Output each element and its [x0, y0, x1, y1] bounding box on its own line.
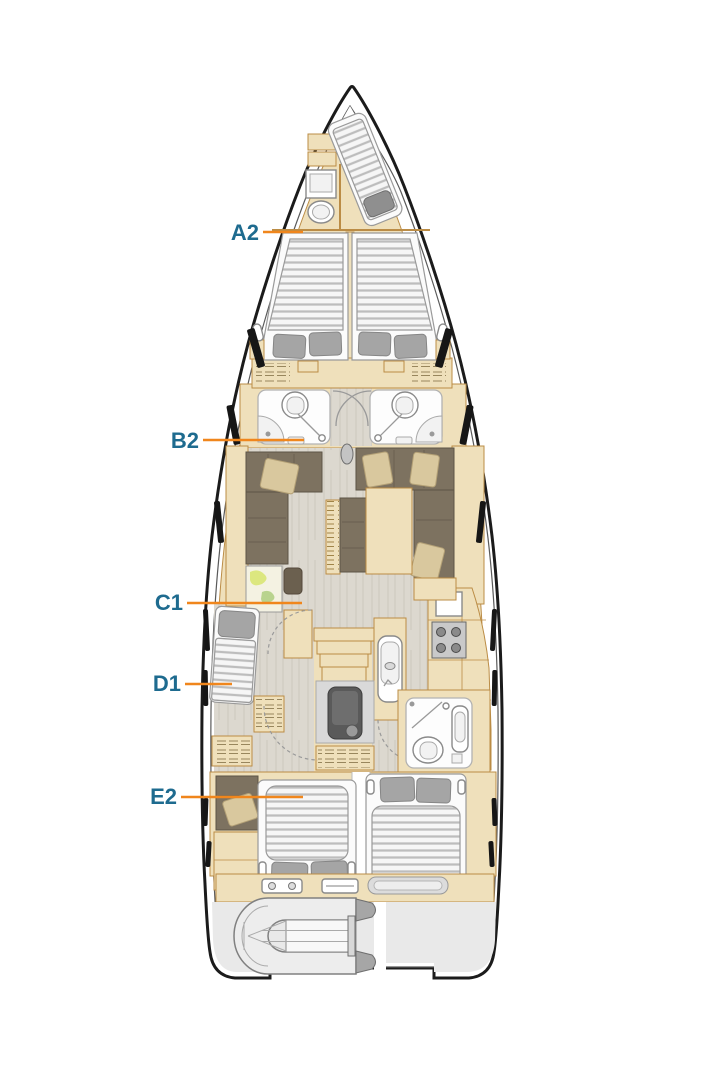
label-e2: E2: [150, 784, 177, 809]
sofa-port-pillow: [260, 458, 299, 494]
port-single-berth: [209, 606, 260, 705]
aft-bed-starboard-pillow-2: [416, 778, 451, 803]
port-berth-mattress: [211, 638, 255, 703]
stair-tread-3: [320, 654, 368, 667]
port-side-locker: [226, 446, 248, 606]
forward-bed-port-pillow-2: [309, 332, 342, 356]
nav-seat: [284, 568, 302, 594]
tender-garage: [212, 898, 496, 974]
engine-shelf-hatch: [318, 748, 372, 768]
forward-shelf-drawer-2: [384, 361, 404, 372]
mast-foot: [341, 444, 353, 464]
stair-tread-4: [322, 667, 366, 681]
sofa-starboard-side-table: [414, 578, 456, 600]
label-b2: B2: [171, 428, 199, 453]
bathroom-port-toilet-bowl: [287, 397, 304, 414]
sofa-port-side: [246, 492, 288, 564]
stove-burner-2: [452, 628, 461, 637]
port-locker-2-hatch: [214, 738, 250, 764]
stove-burner-1: [437, 628, 446, 637]
dining-bench: [340, 498, 366, 572]
dining-table: [366, 488, 412, 574]
stove-burner-4: [452, 644, 461, 653]
label-c1: C1: [155, 590, 183, 615]
yacht-deck-plan: A2 B2 C1 D1 E2: [0, 0, 707, 1080]
label-d1: D1: [153, 671, 181, 696]
aft-head-cabinet: [452, 754, 462, 763]
transom-tray-inner: [374, 881, 442, 890]
nav-cabinet: [284, 610, 312, 658]
stair-tread-1: [314, 628, 374, 641]
transom-gear-knob-1: [269, 883, 276, 890]
forward-shelf-drawer-1: [298, 361, 318, 372]
stove-burner-3: [437, 644, 446, 653]
crew-sink-basin: [310, 174, 332, 192]
dinghy-transom-bar: [348, 916, 355, 956]
sofa-starboard-pillow-1: [362, 451, 393, 487]
aft-bed-starboard-pillow-1: [380, 777, 415, 802]
aft-stbd-reading-light-1: [367, 780, 374, 794]
bathroom-starboard: [370, 390, 442, 444]
bathroom-port-screen-handle: [319, 435, 325, 441]
sofa-starboard-pillow-2: [410, 452, 440, 487]
companionway: [314, 628, 374, 770]
bathroom-port: [258, 390, 330, 444]
yacht-deck-plan-page: A2 B2 C1 D1 E2: [0, 0, 707, 1080]
bathroom-port-drain: [266, 432, 271, 437]
aft-head-toilet-bowl: [420, 742, 437, 759]
dinghy-floor: [286, 920, 356, 952]
table-leaf-slats: [327, 501, 339, 573]
engine-pulley: [346, 725, 358, 737]
stair-tread-2: [317, 641, 371, 654]
aft-head-drain: [410, 702, 415, 707]
port-locker-1-hatch: [256, 698, 282, 730]
aft-head-screen-handle: [443, 703, 449, 709]
engine-block: [332, 691, 358, 725]
transom-gear-knob-2: [289, 883, 296, 890]
companionway-floor: [314, 604, 374, 628]
galley-sink-drain: [385, 663, 395, 670]
port-berth-pillow: [218, 610, 256, 638]
dinghy: [234, 898, 376, 974]
label-a2: A2: [231, 220, 259, 245]
aft-head-sink-basin: [455, 712, 465, 742]
crew-toilet-bowl: [313, 205, 330, 219]
forward-bed-port-pillow-1: [273, 334, 306, 359]
stove: [432, 622, 466, 658]
aft-head: [398, 690, 490, 776]
crew-shelf-2: [308, 152, 336, 166]
aft-stbd-reading-light-2: [458, 780, 465, 794]
